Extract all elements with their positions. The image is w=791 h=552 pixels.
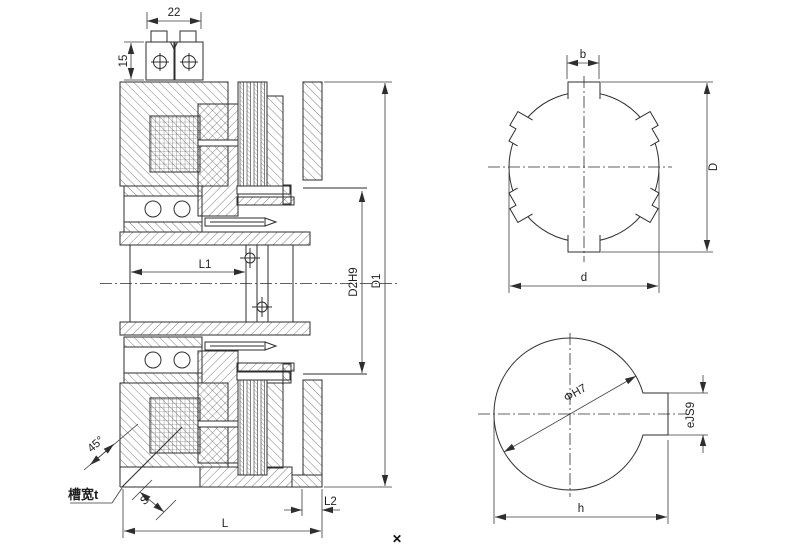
release-bolt-upper <box>205 218 276 226</box>
bearing-upper <box>124 186 202 232</box>
dim-label-D1: D1 <box>371 274 383 289</box>
bore-keyway-view: ΦH7 eJS9 h <box>478 333 708 524</box>
dim-label-L2: L2 <box>324 496 337 508</box>
coil-winding-upper <box>150 116 200 172</box>
dim-label-b: b <box>580 49 586 61</box>
bearing-ball <box>145 352 161 368</box>
spline-profile-view: b D d <box>488 49 720 293</box>
dim-label-h: h <box>578 503 584 515</box>
groove-width-note: 槽宽t <box>68 487 99 502</box>
engineering-drawing-canvas: 22 15 L1 D2H9 D1 L L2 45° S 槽宽t <box>0 0 791 552</box>
stray-x-marker: ✕ <box>392 532 402 546</box>
dim-label-D2H9: D2H9 <box>348 267 360 296</box>
terminal-block <box>146 31 203 80</box>
coil-winding-lower <box>150 398 200 453</box>
bearing-ball <box>145 201 161 217</box>
leader-line <box>112 488 122 503</box>
dim-label-45deg: 45° <box>86 435 107 455</box>
clutch-drawing-svg: 22 15 L1 D2H9 D1 L L2 45° S 槽宽t <box>0 0 791 552</box>
friction-disc-pack-lower <box>238 380 267 475</box>
dim-label-phiH7: ΦH7 <box>562 382 589 404</box>
release-bolt-lower <box>205 342 276 350</box>
dim-label-S: S <box>138 493 152 507</box>
dim-label-L: L <box>222 518 229 530</box>
dim-label-L1: L1 <box>199 259 212 271</box>
dim-label-15: 15 <box>118 55 130 68</box>
dim-label-D: D <box>708 163 720 171</box>
dim-L <box>123 489 322 538</box>
dim-label-22: 22 <box>168 7 181 19</box>
friction-disc-pack-upper <box>238 82 267 186</box>
section-view: 22 15 L1 D2H9 D1 L L2 45° S 槽宽t <box>68 7 398 538</box>
bearing-ball <box>174 352 190 368</box>
dim-label-eJS9: eJS9 <box>685 402 697 428</box>
bearing-lower <box>124 337 202 383</box>
bearing-ball <box>174 201 190 217</box>
dim-label-d: d <box>581 272 587 284</box>
